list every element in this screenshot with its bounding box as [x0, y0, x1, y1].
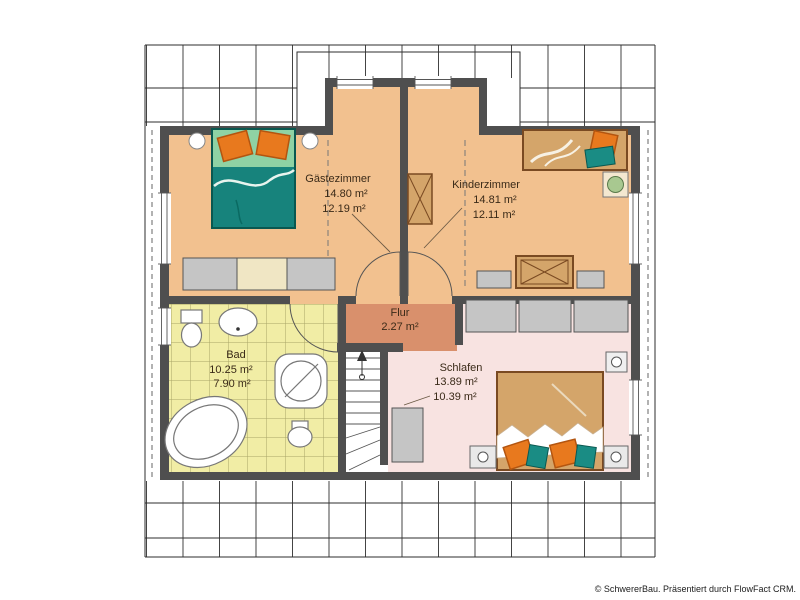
gaestezimmer-area-reduced: 12.19 m² [322, 203, 366, 215]
wall-flur-right-stub [455, 304, 463, 345]
floor-plan-drawing: Gästezimmer 14.80 m² 12.19 m² Kinderzimm… [0, 0, 800, 600]
side-table [606, 352, 627, 372]
window-gaestezimmer-left [158, 193, 171, 264]
wall-mid-horizontal-2 [338, 296, 356, 304]
wall-bottom [160, 472, 640, 480]
bad-area-reduced: 7.90 m² [213, 378, 251, 390]
schlafen-area: 13.89 m² [434, 376, 478, 388]
plant-stand [603, 172, 628, 197]
gaestezimmer-area: 14.80 m² [324, 188, 368, 200]
toilet [288, 421, 312, 447]
double-bed [497, 372, 603, 470]
floor-plan-page: Gästezimmer 14.80 m² 12.19 m² Kinderzimm… [0, 0, 800, 600]
window-dormer-kinderzimmer [415, 76, 451, 89]
nightstand-left [470, 446, 496, 468]
flur-label: Flur [391, 307, 410, 319]
double-bed [212, 129, 295, 228]
bedside-lamp [302, 133, 318, 149]
wall-right-mid [631, 264, 640, 380]
washbasin [219, 308, 257, 336]
shower [275, 354, 327, 408]
single-bed [523, 130, 627, 170]
nightstand-right [604, 446, 628, 468]
kinderzimmer-area-reduced: 12.11 m² [473, 209, 516, 221]
wall-left-upper [160, 126, 169, 193]
wall-bad-right [338, 304, 346, 476]
kinderzimmer-area: 14.81 m² [473, 194, 517, 206]
bad-label: Bad [226, 349, 246, 361]
blanket [585, 146, 615, 168]
wardrobe [392, 408, 423, 462]
roof-grid-bottom [145, 481, 655, 557]
pillow [256, 131, 290, 160]
window-schlafen-right [629, 380, 642, 435]
gaestezimmer-label: Gästezimmer [305, 173, 371, 185]
window-kinderzimmer-right [629, 193, 642, 264]
roof-grid-top [145, 45, 655, 78]
kinderzimmer-label: Kinderzimmer [452, 179, 520, 191]
wc-bidet [181, 310, 202, 347]
window-dormer-gaestezimmer [337, 76, 373, 89]
wall-dormer-front-2 [373, 78, 415, 87]
wall-right-upper [631, 126, 640, 193]
wall-mid-horizontal-1 [168, 296, 290, 304]
closet-row [466, 300, 628, 332]
window-bad-left [158, 308, 171, 345]
wall-center [400, 87, 408, 304]
wall-stair-right [380, 345, 388, 465]
cushion [526, 445, 548, 469]
staircase-floor [346, 351, 384, 476]
schlafen-label: Schlafen [440, 362, 483, 374]
wall-dormer-side-left [325, 78, 333, 135]
wall-left-lower [160, 345, 169, 480]
bedside-lamp [189, 133, 205, 149]
schlafen-area-reduced: 10.39 m² [433, 391, 477, 403]
wall-left-mid [160, 264, 169, 308]
wall-dormer-side-right [479, 78, 487, 135]
wardrobe-crossed [408, 174, 432, 224]
copyright-notice: © SchwererBau. Präsentiert durch FlowFac… [595, 584, 796, 594]
flur-area: 2.27 m² [381, 321, 419, 333]
sideboard [183, 258, 335, 290]
cushion [575, 445, 597, 468]
bad-area: 10.25 m² [209, 364, 253, 376]
wall-flur-bottom [337, 343, 403, 352]
